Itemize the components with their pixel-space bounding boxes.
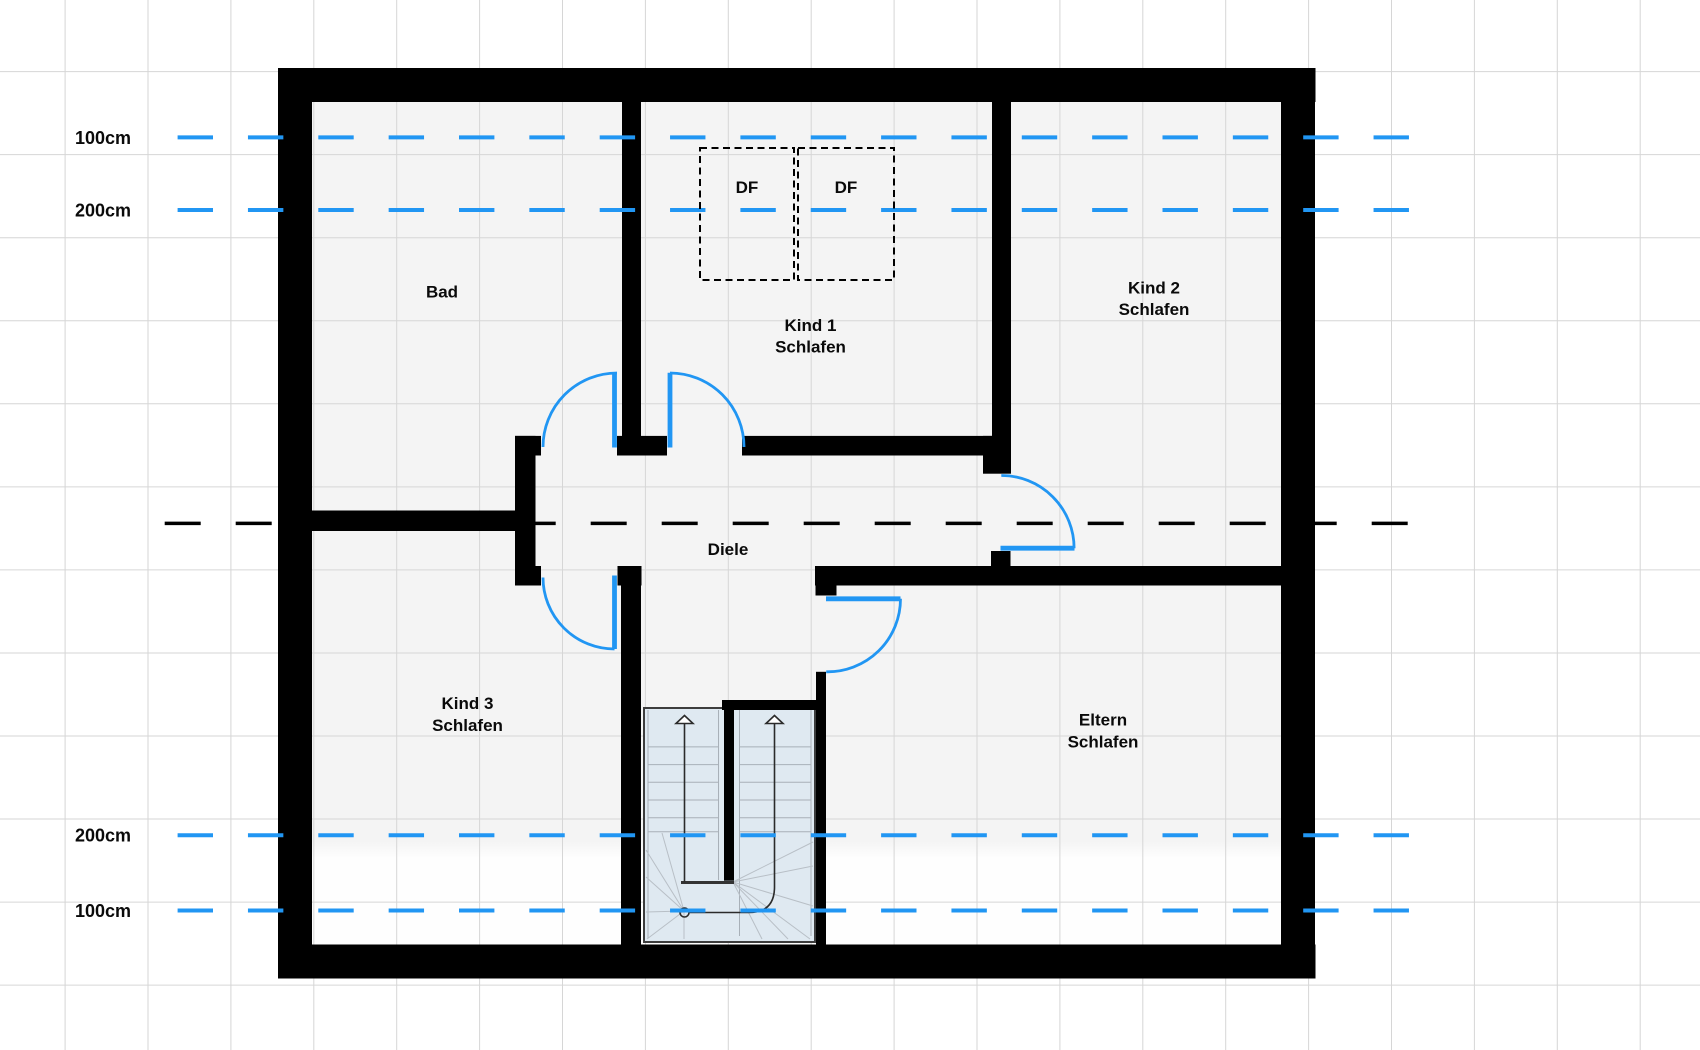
svg-text:DF: DF xyxy=(736,178,759,197)
svg-text:Bad: Bad xyxy=(426,283,458,302)
svg-text:Kind 1: Kind 1 xyxy=(785,316,837,335)
svg-text:Schlafen: Schlafen xyxy=(1119,300,1190,319)
svg-text:100cm: 100cm xyxy=(75,901,131,921)
svg-text:Schlafen: Schlafen xyxy=(775,338,846,357)
svg-text:200cm: 200cm xyxy=(75,200,131,220)
svg-text:Eltern: Eltern xyxy=(1079,711,1127,730)
svg-text:100cm: 100cm xyxy=(75,128,131,148)
svg-text:Schlafen: Schlafen xyxy=(432,716,503,735)
svg-text:Diele: Diele xyxy=(708,540,749,559)
svg-text:Kind 2: Kind 2 xyxy=(1128,279,1180,298)
svg-text:Schlafen: Schlafen xyxy=(1068,733,1139,752)
svg-text:DF: DF xyxy=(835,178,858,197)
svg-text:200cm: 200cm xyxy=(75,826,131,846)
svg-text:Kind 3: Kind 3 xyxy=(442,694,494,713)
